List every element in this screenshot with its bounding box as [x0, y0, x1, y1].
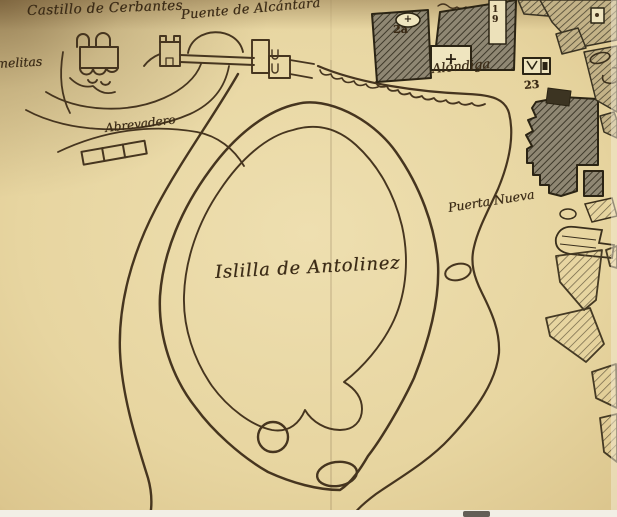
building-number-23: 23	[523, 78, 539, 92]
small-box-dot	[595, 13, 599, 17]
right-edge-margin	[611, 0, 617, 510]
cross-box-glyph: +	[431, 46, 471, 70]
cross-oval-glyph: +	[401, 13, 415, 26]
building-number-19: 19	[492, 5, 500, 25]
bottom-margin	[0, 510, 617, 517]
gate-symbol-marker	[523, 58, 550, 74]
top-left-vignette	[0, 0, 300, 220]
label-carmelitas-fragment: melitas	[0, 54, 42, 71]
dark-square-marker	[546, 88, 571, 106]
cropped-text-fragment	[463, 511, 490, 517]
dark-building-annex	[584, 171, 603, 196]
historical-map-canvas: Castillo de Cerbantes Puente de Alcántar…	[0, 0, 617, 517]
